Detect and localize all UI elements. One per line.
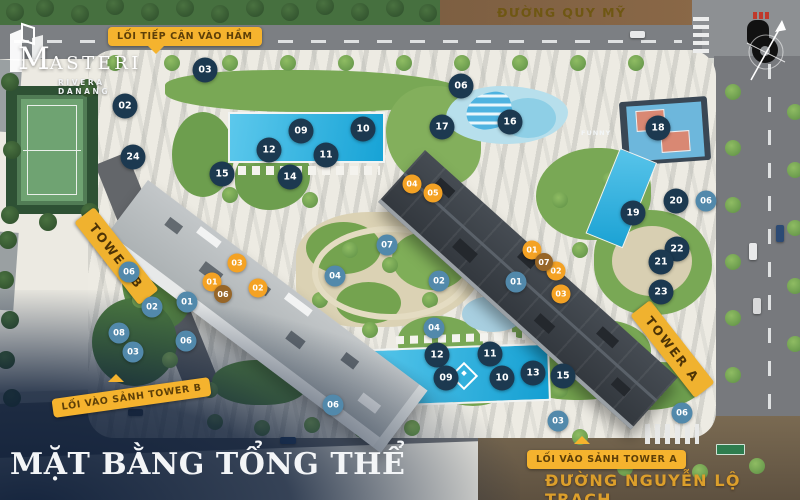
map-marker-b-06[interactable]: 06 [672, 403, 693, 424]
crosswalk [645, 424, 699, 444]
map-marker-d-10[interactable]: 10 [490, 366, 515, 391]
roof-vent [164, 217, 183, 235]
map-marker-b-06[interactable]: 06 [323, 395, 344, 416]
tree-icon [787, 278, 800, 294]
map-marker-d-10[interactable]: 10 [351, 117, 376, 142]
map-marker-b-04[interactable]: 04 [424, 318, 445, 339]
street-name-nguyen-lo-trach: ĐƯỜNG NGUYỄN LỘ TRẠCH [545, 471, 800, 500]
pool-deck-chairs [238, 166, 380, 175]
tree-icon [787, 220, 800, 236]
map-marker-d-02[interactable]: 02 [113, 94, 138, 119]
map-marker-d-15[interactable]: 15 [210, 162, 235, 187]
tree-icon [6, 3, 24, 21]
lobby-b-pointer-icon [108, 374, 124, 382]
roof-vent [534, 313, 556, 334]
tree-icon [351, 3, 369, 21]
map-marker-b-07[interactable]: 07 [377, 235, 398, 256]
map-marker-d-17[interactable]: 17 [430, 115, 455, 140]
brand-subtitle: RIVERA DANANG [58, 78, 156, 96]
road-center-dashes [768, 64, 771, 424]
map-marker-d-11[interactable]: 11 [314, 143, 339, 168]
tennis-court [17, 95, 87, 205]
tree-icon [725, 197, 741, 213]
street-name-quy-my: ĐƯỜNG QUY MỸ [497, 5, 626, 20]
car-icon [776, 225, 784, 242]
brand-logo: MASTERI RIVERA DANANG [6, 20, 156, 90]
map-marker-b-01[interactable]: 01 [506, 272, 527, 293]
car-icon [630, 31, 645, 38]
map-marker-d-14[interactable]: 14 [278, 165, 303, 190]
tree-icon [1, 206, 19, 224]
map-marker-b-04[interactable]: 04 [325, 266, 346, 287]
map-marker-d-09[interactable]: 09 [434, 366, 459, 391]
map-marker-o-03[interactable]: 03 [228, 254, 247, 273]
map-marker-d-06[interactable]: 06 [449, 74, 474, 99]
tree-icon [3, 141, 21, 159]
map-marker-z-07[interactable]: 07 [535, 253, 553, 271]
tree-icon [419, 4, 437, 22]
map-marker-d-15[interactable]: 15 [551, 364, 576, 389]
map-marker-d-09[interactable]: 09 [289, 119, 314, 144]
tree-icon [787, 336, 800, 352]
tree-icon [39, 213, 57, 231]
map-marker-d-21[interactable]: 21 [649, 250, 674, 275]
map-marker-z-06[interactable]: 06 [214, 285, 232, 303]
tree-icon [338, 55, 354, 71]
tree-icon [211, 5, 229, 23]
tree-icon [302, 192, 318, 208]
map-marker-d-11[interactable]: 11 [478, 342, 503, 367]
map-marker-o-02[interactable]: 02 [249, 279, 268, 298]
tree-icon [552, 192, 568, 208]
compass-logo-icon [733, 10, 795, 90]
tree-icon [725, 140, 741, 156]
page-title: MẶT BẰNG TỔNG THỂ [10, 447, 405, 482]
tree-icon [164, 55, 180, 71]
tree-icon [725, 367, 741, 383]
tree-icon [787, 162, 800, 178]
tree-icon [141, 3, 159, 21]
tree-icon [628, 55, 644, 71]
map-marker-d-23[interactable]: 23 [649, 280, 674, 305]
tree-icon [787, 104, 800, 120]
map-marker-o-04[interactable]: 04 [403, 175, 422, 194]
brand-name: MASTERI [18, 44, 142, 75]
map-marker-b-01[interactable]: 01 [177, 292, 198, 313]
tree-icon [280, 55, 296, 71]
tree-icon [222, 55, 238, 71]
map-marker-d-20[interactable]: 20 [664, 189, 689, 214]
tree-icon [222, 187, 238, 203]
map-marker-b-06[interactable]: 06 [696, 191, 717, 212]
tree-icon [454, 55, 470, 71]
tree-icon [512, 55, 528, 71]
lobby-a-entrance-badge: LỐI VÀO SẢNH TOWER A [527, 450, 686, 469]
tree-icon [570, 55, 586, 71]
map-marker-b-03[interactable]: 03 [548, 411, 569, 432]
roof-vent [611, 377, 631, 396]
map-marker-d-12[interactable]: 12 [425, 343, 450, 368]
crosswalk [693, 17, 709, 55]
map-marker-d-24[interactable]: 24 [121, 145, 146, 170]
roof-vent [452, 238, 478, 263]
roof-vent [596, 326, 619, 348]
map-marker-b-02[interactable]: 02 [429, 271, 450, 292]
map-marker-b-06[interactable]: 06 [176, 331, 197, 352]
tree-icon [572, 242, 588, 258]
masterplan-map: ĐƯỜNG QUY MỸ ĐƯỜNG NGUYỄN LỘ TRẠCH FUNNY… [0, 0, 800, 500]
tree-icon [725, 310, 741, 326]
map-marker-d-16[interactable]: 16 [498, 110, 523, 135]
map-marker-o-05[interactable]: 05 [424, 184, 443, 203]
funny-area-text: FUNNY [581, 129, 611, 137]
map-marker-d-18[interactable]: 18 [646, 116, 671, 141]
map-marker-b-03[interactable]: 03 [123, 342, 144, 363]
car-icon [749, 243, 757, 260]
map-marker-o-03[interactable]: 03 [552, 285, 571, 304]
car-icon [753, 298, 761, 314]
map-marker-b-02[interactable]: 02 [142, 297, 163, 318]
map-marker-b-06[interactable]: 06 [119, 262, 140, 283]
map-marker-d-12[interactable]: 12 [257, 138, 282, 163]
map-marker-d-13[interactable]: 13 [521, 361, 546, 386]
map-marker-d-19[interactable]: 19 [621, 201, 646, 226]
map-marker-d-03[interactable]: 03 [193, 58, 218, 83]
court-net [23, 150, 81, 151]
tree-icon [396, 55, 412, 71]
tree-icon [281, 3, 299, 21]
map-marker-b-08[interactable]: 08 [109, 323, 130, 344]
lobby-a-pointer-icon [574, 436, 590, 444]
road-sign [716, 444, 745, 455]
tree-icon [725, 254, 741, 270]
